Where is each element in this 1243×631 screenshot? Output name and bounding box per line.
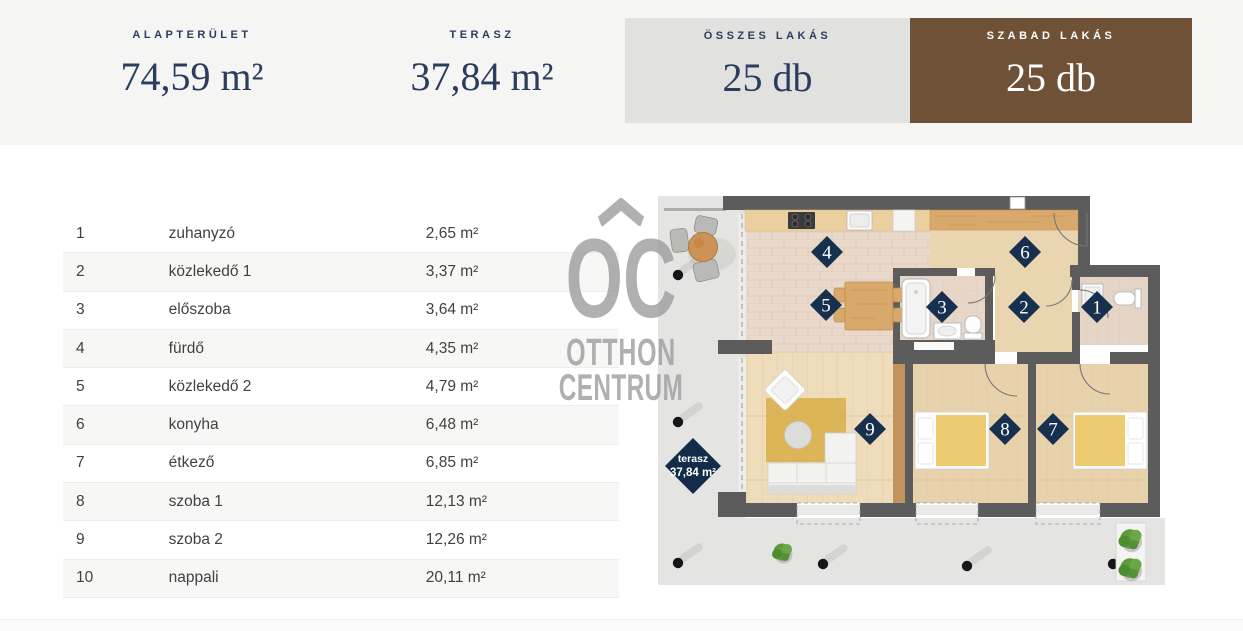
room-name: szoba 1 (169, 483, 426, 521)
stat-label: ALAPTERÜLET (63, 29, 321, 41)
bed (915, 412, 989, 469)
room-area: 3,64 m² (426, 291, 619, 329)
apartment-detail-page: ALAPTERÜLET 74,59 m² TERASZ 37,84 m² ÖSS… (0, 0, 1243, 631)
room-list-table: 1zuhanyzó2,65 m²2közlekedő 13,37 m²3elős… (63, 215, 619, 598)
stat-alapterulet: ALAPTERÜLET 74,59 m² (63, 0, 321, 145)
stat-label: SZABAD LAKÁS (910, 30, 1192, 42)
room-number: 1 (63, 215, 169, 253)
room-number: 6 (63, 406, 169, 444)
room-number: 2 (63, 253, 169, 291)
room-area: 6,85 m² (426, 444, 619, 482)
sliding-door-panel (893, 364, 905, 503)
svg-text:2: 2 (1019, 298, 1029, 319)
room-area: 4,79 m² (426, 368, 619, 406)
stat-terasz: TERASZ 37,84 m² (353, 0, 611, 145)
room-area: 4,35 m² (426, 329, 619, 367)
table-row: 9szoba 212,26 m² (63, 521, 619, 559)
stat-value: 25 db (910, 56, 1192, 100)
table-row: 4fürdő4,35 m² (63, 329, 619, 367)
room-number: 9 (63, 521, 169, 559)
svg-text:terasz: terasz (678, 453, 708, 465)
room-number: 10 (63, 559, 169, 597)
wall-niche (1010, 197, 1025, 209)
room-area: 12,13 m² (426, 483, 619, 521)
room-name: előszoba (169, 291, 426, 329)
sideboard (930, 210, 1078, 230)
stat-label: TERASZ (353, 29, 611, 41)
stat-szabad-lakas: SZABAD LAKÁS 25 db (910, 18, 1192, 123)
room-area: 3,37 m² (426, 253, 619, 291)
cooktop (788, 212, 815, 229)
table-row: 8szoba 112,13 m² (63, 483, 619, 521)
stat-osszes-lakas: ÖSSZES LAKÁS 25 db (625, 18, 910, 123)
svg-text:6: 6 (1020, 243, 1030, 264)
svg-text:37,84 m²: 37,84 m² (670, 467, 716, 479)
table-row: 10nappali20,11 m² (63, 559, 619, 597)
table-row: 3előszoba3,64 m² (63, 291, 619, 329)
worktop (893, 210, 915, 231)
svg-text:7: 7 (1048, 420, 1058, 441)
stat-value: 74,59 m² (63, 55, 321, 99)
svg-text:3: 3 (937, 298, 947, 319)
room-name: közlekedő 1 (169, 253, 426, 291)
room-name: zuhanyzó (169, 215, 426, 253)
stats-bar: ALAPTERÜLET 74,59 m² TERASZ 37,84 m² ÖSS… (0, 0, 1243, 145)
room-number: 7 (63, 444, 169, 482)
room-name: szoba 2 (169, 521, 426, 559)
table-row: 2közlekedő 13,37 m² (63, 253, 619, 291)
svg-text:9: 9 (865, 420, 875, 441)
table-row: 6konyha6,48 m² (63, 406, 619, 444)
room-name: közlekedő 2 (169, 368, 426, 406)
bed (1073, 412, 1147, 469)
stat-label: ÖSSZES LAKÁS (625, 30, 910, 42)
room-area: 2,65 m² (426, 215, 619, 253)
room-number: 8 (63, 483, 169, 521)
room-name: étkező (169, 444, 426, 482)
coffee-table (785, 422, 812, 449)
stat-value: 25 db (625, 56, 910, 100)
svg-text:5: 5 (821, 296, 831, 317)
svg-text:1: 1 (1092, 298, 1102, 319)
room-area: 6,48 m² (426, 406, 619, 444)
toilet (1114, 292, 1135, 305)
room-name: fürdő (169, 329, 426, 367)
room-name: nappali (169, 559, 426, 597)
room-number: 4 (63, 329, 169, 367)
table-row: 7étkező6,85 m² (63, 444, 619, 482)
room-area: 20,11 m² (426, 559, 619, 597)
stat-value: 37,84 m² (353, 55, 611, 99)
room-area: 12,26 m² (426, 521, 619, 559)
svg-text:4: 4 (822, 243, 832, 264)
floor-plan: 1 2 3 4 5 6 7 8 9 terasz 37,84 m² (658, 192, 1165, 587)
room-number: 5 (63, 368, 169, 406)
bottom-band (0, 619, 1243, 631)
planter-box (1116, 523, 1146, 581)
table-row: 5közlekedő 24,79 m² (63, 368, 619, 406)
room-number: 3 (63, 291, 169, 329)
room-table-body: 1zuhanyzó2,65 m²2közlekedő 13,37 m²3elős… (63, 215, 619, 597)
svg-text:8: 8 (1000, 420, 1010, 441)
laundry-niche (914, 342, 954, 350)
toilet (965, 316, 981, 333)
terrace-railing (664, 208, 726, 211)
table-row: 1zuhanyzó2,65 m² (63, 215, 619, 253)
room-name: konyha (169, 406, 426, 444)
